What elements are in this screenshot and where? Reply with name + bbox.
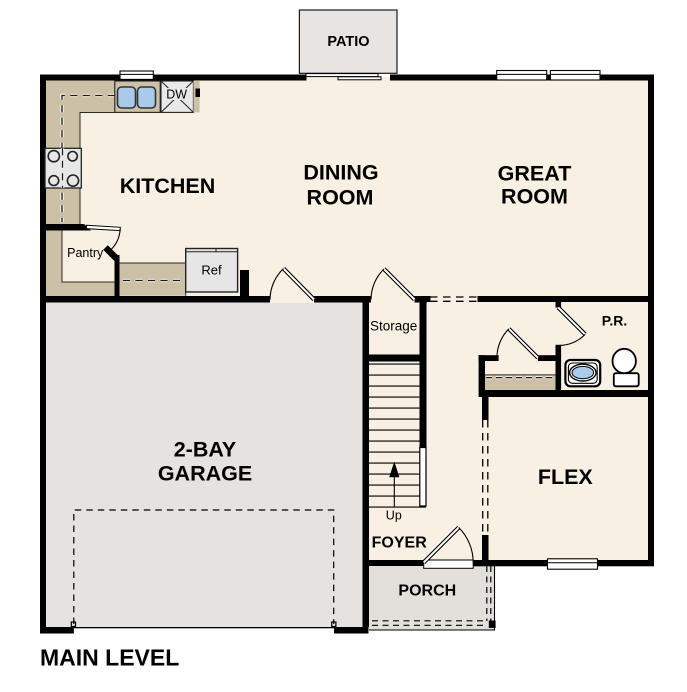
svg-text:PORCH: PORCH bbox=[398, 583, 456, 600]
svg-text:DINING: DINING bbox=[303, 161, 378, 185]
svg-text:PATIO: PATIO bbox=[327, 34, 369, 50]
svg-text:ROOM: ROOM bbox=[307, 186, 374, 210]
svg-text:ROOM: ROOM bbox=[501, 185, 568, 209]
svg-text:Up: Up bbox=[386, 509, 402, 523]
svg-text:2-BAY: 2-BAY bbox=[174, 438, 237, 462]
svg-text:DW: DW bbox=[166, 88, 187, 102]
svg-text:GARAGE: GARAGE bbox=[158, 462, 252, 486]
svg-text:Ref: Ref bbox=[201, 263, 222, 278]
svg-text:Pantry: Pantry bbox=[67, 246, 104, 260]
svg-text:Storage: Storage bbox=[370, 319, 417, 334]
svg-text:FOYER: FOYER bbox=[372, 535, 428, 552]
svg-text:KITCHEN: KITCHEN bbox=[120, 174, 216, 198]
svg-text:P.R.: P.R. bbox=[602, 313, 627, 329]
svg-text:GREAT: GREAT bbox=[498, 162, 572, 186]
svg-text:MAIN LEVEL: MAIN LEVEL bbox=[40, 645, 179, 671]
svg-text:FLEX: FLEX bbox=[538, 465, 594, 489]
